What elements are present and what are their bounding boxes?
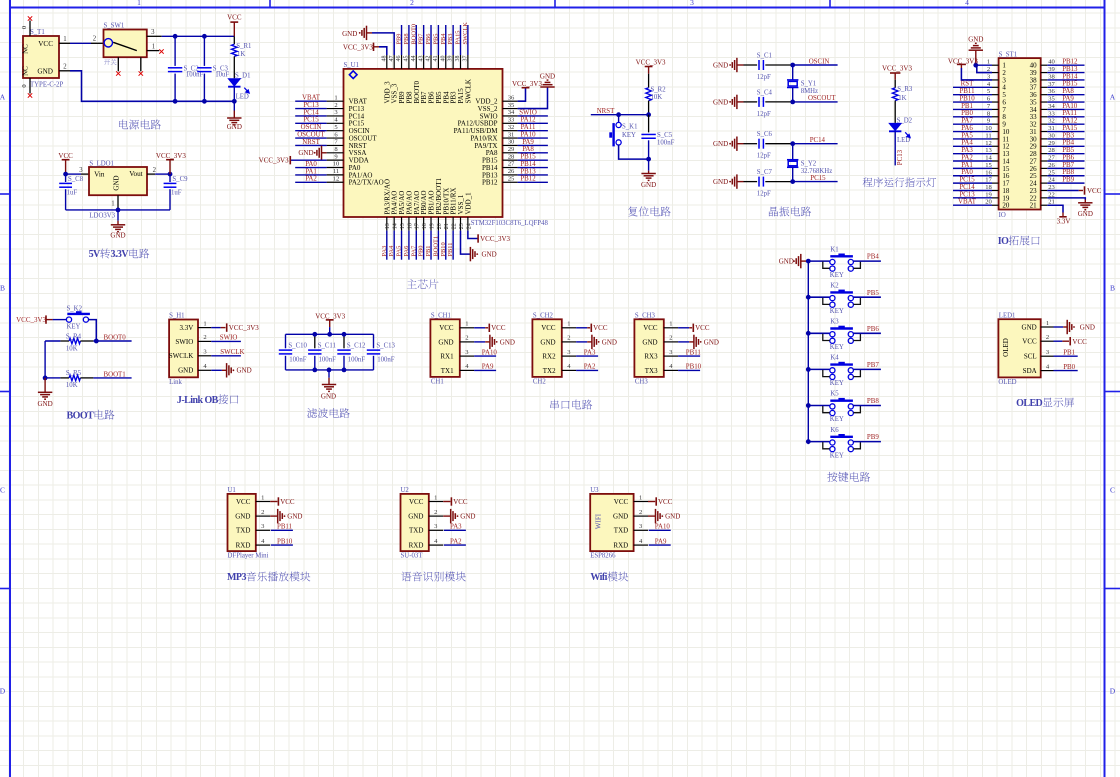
svg-text:GND: GND xyxy=(500,338,515,346)
svg-text:PB12: PB12 xyxy=(1062,59,1078,66)
svg-text:39: 39 xyxy=(448,56,454,62)
svg-text:OLED: OLED xyxy=(1002,338,1010,357)
svg-text:NRST: NRST xyxy=(597,108,615,115)
svg-text:J-Link OB: J-Link OB xyxy=(177,395,219,406)
svg-text:PB9: PB9 xyxy=(867,434,879,441)
svg-text:18: 18 xyxy=(422,223,428,229)
svg-text:PB8: PB8 xyxy=(403,33,410,44)
svg-text:1uF: 1uF xyxy=(171,190,182,197)
svg-text:PB11: PB11 xyxy=(447,243,454,257)
svg-text:PA10: PA10 xyxy=(482,349,498,356)
svg-text:BOOT1: BOOT1 xyxy=(104,371,127,378)
svg-text:K3: K3 xyxy=(830,319,839,326)
svg-text:PA10: PA10 xyxy=(1062,103,1078,110)
svg-text:PA9: PA9 xyxy=(482,364,494,371)
svg-text:GND: GND xyxy=(37,67,53,75)
svg-text:S_C9: S_C9 xyxy=(172,176,188,183)
svg-text:PA2: PA2 xyxy=(305,176,317,183)
svg-text:U3: U3 xyxy=(590,487,599,494)
svg-text:1: 1 xyxy=(639,494,642,501)
svg-text:LED1: LED1 xyxy=(999,313,1016,320)
svg-text:TXD: TXD xyxy=(236,527,250,535)
svg-text:2: 2 xyxy=(261,509,264,516)
svg-text:IO: IO xyxy=(999,212,1006,219)
svg-text:PB15: PB15 xyxy=(520,154,536,161)
svg-text:2: 2 xyxy=(639,509,642,516)
svg-text:PB8: PB8 xyxy=(1062,169,1074,176)
svg-text:2: 2 xyxy=(203,334,206,341)
svg-text:OSCOUT: OSCOUT xyxy=(297,131,325,138)
svg-text:PC14: PC14 xyxy=(303,109,319,116)
svg-text:RX1: RX1 xyxy=(440,353,454,361)
svg-text:KEY: KEY xyxy=(830,344,844,351)
svg-text:S_C8: S_C8 xyxy=(68,176,84,183)
svg-text:24: 24 xyxy=(466,223,472,229)
svg-text:PB1: PB1 xyxy=(961,103,973,110)
svg-text:VCC_3V3: VCC_3V3 xyxy=(259,157,289,165)
svg-text:C: C xyxy=(1110,486,1115,495)
svg-text:S_C10: S_C10 xyxy=(288,343,307,350)
svg-text:PC13: PC13 xyxy=(959,191,975,198)
svg-text:VCC_3V3: VCC_3V3 xyxy=(156,152,186,160)
svg-text:VCC: VCC xyxy=(1022,338,1037,346)
svg-text:PA15: PA15 xyxy=(455,31,462,45)
svg-text:PB1: PB1 xyxy=(1063,349,1075,356)
svg-text:48: 48 xyxy=(381,56,387,62)
svg-text:PB7: PB7 xyxy=(418,33,425,45)
svg-text:PA15: PA15 xyxy=(1062,125,1078,132)
svg-text:27: 27 xyxy=(508,161,515,168)
svg-text:GND: GND xyxy=(321,392,336,400)
svg-text:S_C7: S_C7 xyxy=(757,169,773,176)
svg-text:GND: GND xyxy=(298,149,313,157)
svg-text:31: 31 xyxy=(508,131,515,138)
svg-text:GND: GND xyxy=(235,513,250,521)
svg-text:GND: GND xyxy=(342,30,357,38)
svg-text:GND: GND xyxy=(1022,323,1037,331)
svg-text:VCC: VCC xyxy=(409,498,424,506)
svg-text:20: 20 xyxy=(437,223,443,229)
svg-text:TX1: TX1 xyxy=(441,367,454,375)
svg-text:1: 1 xyxy=(669,321,672,328)
svg-text:SWCLK: SWCLK xyxy=(220,349,244,356)
svg-text:Vout: Vout xyxy=(129,170,142,178)
svg-text:1: 1 xyxy=(111,201,114,208)
svg-text:KEY: KEY xyxy=(830,380,844,387)
svg-text:10K: 10K xyxy=(66,382,78,389)
svg-text:3.3V: 3.3V xyxy=(179,324,193,332)
svg-text:CH3: CH3 xyxy=(635,378,648,385)
svg-text:PB11: PB11 xyxy=(686,349,702,356)
svg-text:2: 2 xyxy=(63,64,67,71)
svg-text:PA12: PA12 xyxy=(520,117,536,124)
svg-text:VCC: VCC xyxy=(280,498,295,506)
svg-text:GND: GND xyxy=(540,338,555,346)
svg-text:S_U1: S_U1 xyxy=(344,62,360,69)
svg-text:36: 36 xyxy=(508,94,515,101)
svg-text:PB5: PB5 xyxy=(867,290,879,297)
svg-text:PB8: PB8 xyxy=(867,398,879,405)
svg-text:S_LDO1: S_LDO1 xyxy=(89,160,114,167)
svg-text:32.768KHz: 32.768KHz xyxy=(801,168,833,175)
svg-text:2: 2 xyxy=(1046,334,1049,341)
svg-text:SWCLK: SWCLK xyxy=(464,79,472,104)
svg-text:1uF: 1uF xyxy=(67,190,78,197)
svg-text:PB12: PB12 xyxy=(482,179,498,187)
svg-text:S_ST1: S_ST1 xyxy=(999,51,1018,58)
svg-text:S_K2: S_K2 xyxy=(67,305,83,312)
svg-text:26: 26 xyxy=(508,168,515,175)
svg-text:40: 40 xyxy=(440,56,446,62)
svg-text:RX2: RX2 xyxy=(542,353,556,361)
svg-text:D: D xyxy=(1110,687,1116,696)
svg-text:PC15: PC15 xyxy=(810,175,826,182)
svg-text:S_R4: S_R4 xyxy=(66,333,82,340)
svg-text:KEY: KEY xyxy=(830,272,844,279)
svg-text:TXD: TXD xyxy=(614,527,628,535)
svg-text:VBAT: VBAT xyxy=(958,199,977,206)
svg-text:K1: K1 xyxy=(830,246,838,253)
svg-text:VCC: VCC xyxy=(614,498,629,506)
svg-text:DFPlayer Mini: DFPlayer Mini xyxy=(228,553,269,560)
svg-text:PB13: PB13 xyxy=(1062,66,1078,73)
svg-text:RX3: RX3 xyxy=(644,353,658,361)
svg-text:RXD: RXD xyxy=(236,542,251,550)
svg-text:GND: GND xyxy=(779,258,794,266)
svg-text:38: 38 xyxy=(455,56,461,62)
svg-text:23: 23 xyxy=(459,223,465,229)
svg-text:PA1: PA1 xyxy=(961,162,973,169)
svg-text:A: A xyxy=(0,93,6,102)
svg-text:OSCIN: OSCIN xyxy=(809,58,830,65)
svg-text:OSCOUT: OSCOUT xyxy=(808,95,836,102)
svg-text:1: 1 xyxy=(63,36,66,43)
svg-text:PC15: PC15 xyxy=(303,117,319,124)
svg-text:S_R2: S_R2 xyxy=(651,86,667,93)
svg-text:NC: NC xyxy=(22,66,30,76)
svg-text:KEY: KEY xyxy=(622,132,636,139)
svg-text:0: 0 xyxy=(21,84,28,87)
svg-text:B: B xyxy=(1110,284,1115,293)
svg-text:RXD: RXD xyxy=(613,542,628,550)
svg-text:S_Y1: S_Y1 xyxy=(801,81,817,88)
svg-text:12pF: 12pF xyxy=(757,191,771,198)
svg-text:15: 15 xyxy=(400,223,406,229)
svg-text:D: D xyxy=(0,687,6,696)
svg-text:VCC_3V3: VCC_3V3 xyxy=(16,316,46,324)
svg-text:12pF: 12pF xyxy=(757,111,771,118)
svg-text:GND: GND xyxy=(665,513,680,521)
svg-text:5V: 5V xyxy=(89,249,101,260)
svg-text:21: 21 xyxy=(1030,202,1038,210)
svg-text:100nF: 100nF xyxy=(289,356,307,363)
svg-text:2: 2 xyxy=(93,36,97,43)
svg-text:12: 12 xyxy=(333,175,340,182)
svg-text:PA8: PA8 xyxy=(1062,88,1074,95)
svg-text:PA3: PA3 xyxy=(450,524,462,531)
svg-text:28: 28 xyxy=(508,153,515,160)
svg-text:46: 46 xyxy=(396,56,402,62)
svg-text:PB15: PB15 xyxy=(1062,81,1078,88)
svg-text:22: 22 xyxy=(452,223,458,229)
svg-text:C: C xyxy=(0,486,5,495)
svg-text:TX3: TX3 xyxy=(645,367,658,375)
svg-text:PB4: PB4 xyxy=(440,33,447,45)
svg-text:20: 20 xyxy=(1002,202,1010,210)
svg-text:PB7: PB7 xyxy=(1062,162,1074,169)
svg-text:1: 1 xyxy=(1046,320,1049,327)
svg-text:0: 0 xyxy=(21,26,28,29)
svg-text:PC15: PC15 xyxy=(959,177,975,184)
svg-text:LED: LED xyxy=(897,137,910,144)
svg-text:1: 1 xyxy=(334,94,337,101)
svg-text:13: 13 xyxy=(385,223,391,229)
svg-text:BOOT: BOOT xyxy=(67,410,95,421)
svg-text:2: 2 xyxy=(567,335,570,342)
svg-text:VCC: VCC xyxy=(593,324,608,332)
svg-text:VCC: VCC xyxy=(1072,338,1087,346)
svg-text:10: 10 xyxy=(333,161,340,168)
svg-text:TX2: TX2 xyxy=(543,367,556,375)
svg-text:PB0: PB0 xyxy=(418,245,425,256)
svg-text:GND: GND xyxy=(642,338,657,346)
svg-text:GND: GND xyxy=(287,513,302,521)
svg-text:10uF: 10uF xyxy=(215,72,229,79)
svg-text:PA5: PA5 xyxy=(396,246,403,257)
svg-text:PA6: PA6 xyxy=(403,246,410,257)
svg-text:VCC: VCC xyxy=(439,324,454,332)
svg-text:100nF: 100nF xyxy=(186,72,204,79)
svg-text:PA4: PA4 xyxy=(961,140,973,147)
svg-text:KEY: KEY xyxy=(67,323,81,330)
svg-text:OLED: OLED xyxy=(998,379,1016,386)
svg-text:SWIO: SWIO xyxy=(175,338,193,346)
svg-text:VCC: VCC xyxy=(236,498,251,506)
svg-text:PC13: PC13 xyxy=(303,102,319,109)
svg-text:PB5: PB5 xyxy=(432,33,439,44)
svg-text:GND: GND xyxy=(482,251,497,259)
svg-text:14: 14 xyxy=(393,223,399,229)
svg-text:3: 3 xyxy=(690,0,694,7)
svg-text:100nF: 100nF xyxy=(348,356,366,363)
svg-text:IO: IO xyxy=(998,236,1009,247)
svg-text:29: 29 xyxy=(508,146,515,153)
svg-text:KEY: KEY xyxy=(830,308,844,315)
svg-text:K2: K2 xyxy=(830,282,839,289)
svg-text:PB10: PB10 xyxy=(277,538,293,545)
svg-text:CH1: CH1 xyxy=(431,378,444,385)
svg-text:MP3: MP3 xyxy=(227,572,246,583)
svg-text:PB14: PB14 xyxy=(1062,73,1078,80)
svg-text:BOOT1: BOOT1 xyxy=(432,236,439,257)
svg-text:VCC_3V3: VCC_3V3 xyxy=(882,65,912,73)
svg-text:33: 33 xyxy=(508,117,515,124)
svg-text:GND: GND xyxy=(110,232,125,240)
svg-text:PA10: PA10 xyxy=(655,524,671,531)
svg-text:1K: 1K xyxy=(898,95,906,102)
svg-text:41: 41 xyxy=(433,56,439,62)
svg-text:RST: RST xyxy=(961,81,974,88)
svg-text:VCC: VCC xyxy=(453,498,468,506)
svg-text:GND: GND xyxy=(968,36,983,44)
svg-text:12pF: 12pF xyxy=(757,153,771,160)
svg-text:SWCLK: SWCLK xyxy=(462,22,469,45)
svg-text:VBAT: VBAT xyxy=(302,95,321,102)
svg-text:BOOT0: BOOT0 xyxy=(410,24,417,45)
svg-text:PC14: PC14 xyxy=(959,184,975,191)
svg-text:B: B xyxy=(0,284,5,293)
svg-text:100nF: 100nF xyxy=(319,356,337,363)
svg-text:PB0: PB0 xyxy=(1063,364,1075,371)
svg-text:GND: GND xyxy=(704,338,719,346)
svg-text:VCC_3V3: VCC_3V3 xyxy=(229,324,259,332)
svg-text:VCC_3V3: VCC_3V3 xyxy=(343,44,373,52)
svg-text:37: 37 xyxy=(462,56,468,62)
svg-text:OLED: OLED xyxy=(1016,398,1042,409)
svg-text:GND: GND xyxy=(178,367,193,375)
svg-text:SCL: SCL xyxy=(1024,353,1037,361)
svg-text:S_C5: S_C5 xyxy=(657,132,673,139)
svg-text:47: 47 xyxy=(389,56,395,62)
svg-text:45: 45 xyxy=(404,56,410,62)
svg-text:2: 2 xyxy=(153,167,157,174)
svg-text:S_T1: S_T1 xyxy=(30,29,45,36)
svg-text:GND: GND xyxy=(438,338,453,346)
svg-text:1: 1 xyxy=(203,320,206,327)
svg-text:VCC: VCC xyxy=(658,498,673,506)
svg-text:GND: GND xyxy=(113,175,121,190)
svg-text:PB9: PB9 xyxy=(396,33,403,44)
svg-text:LDO3V3: LDO3V3 xyxy=(89,212,115,219)
svg-text:PA9: PA9 xyxy=(1062,95,1074,102)
svg-text:PB1: PB1 xyxy=(425,245,432,256)
svg-text:PA8: PA8 xyxy=(522,146,534,153)
svg-text:NC: NC xyxy=(22,44,30,54)
svg-text:PA3: PA3 xyxy=(381,246,388,257)
svg-text:VCC: VCC xyxy=(643,324,658,332)
svg-text:VCC: VCC xyxy=(491,324,506,332)
svg-text:S_CH3: S_CH3 xyxy=(635,312,656,319)
svg-text:16: 16 xyxy=(407,223,413,229)
svg-text:PB12: PB12 xyxy=(520,176,536,183)
svg-text:PA12: PA12 xyxy=(1062,118,1078,125)
svg-text:TYPE-C-2P: TYPE-C-2P xyxy=(30,82,63,89)
svg-text:S_CH2: S_CH2 xyxy=(533,312,554,319)
svg-text:SDA: SDA xyxy=(1023,367,1037,375)
svg-text:S_R1: S_R1 xyxy=(236,43,251,50)
svg-text:PB6: PB6 xyxy=(867,326,879,333)
svg-text:TXD: TXD xyxy=(409,527,423,535)
svg-text:VCC_3V3: VCC_3V3 xyxy=(636,58,666,66)
svg-text:PB10: PB10 xyxy=(440,242,447,256)
svg-text:PB14: PB14 xyxy=(520,161,536,168)
svg-text:VCC_3V3: VCC_3V3 xyxy=(512,80,542,88)
svg-text:CH2: CH2 xyxy=(533,378,546,385)
svg-text:PA2: PA2 xyxy=(450,538,462,545)
svg-text:STM32F103C8T6_LQFP48: STM32F103C8T6_LQFP48 xyxy=(471,220,549,227)
svg-text:1: 1 xyxy=(465,321,468,328)
svg-text:GND: GND xyxy=(237,367,252,375)
svg-text:GND: GND xyxy=(713,140,728,148)
svg-text:LED: LED xyxy=(236,94,249,101)
svg-text:K4: K4 xyxy=(830,355,839,362)
svg-text:VCC: VCC xyxy=(58,152,73,160)
svg-text:PB10: PB10 xyxy=(959,95,975,102)
svg-text:S_C4: S_C4 xyxy=(757,89,773,96)
svg-text:PA4: PA4 xyxy=(388,245,395,257)
svg-text:PB0: PB0 xyxy=(961,110,973,117)
svg-text:PC13: PC13 xyxy=(897,149,904,165)
svg-text:S_K1: S_K1 xyxy=(622,123,638,130)
svg-text:GND: GND xyxy=(1080,324,1095,332)
svg-text:10K: 10K xyxy=(651,94,663,101)
svg-text:PA3: PA3 xyxy=(584,349,596,356)
svg-text:GND: GND xyxy=(613,513,628,521)
svg-text:100nF: 100nF xyxy=(657,139,675,146)
svg-text:PA2/TX/AO: PA2/TX/AO xyxy=(349,179,384,187)
svg-text:1: 1 xyxy=(434,494,437,501)
svg-text:VCC: VCC xyxy=(227,13,242,21)
svg-text:PB4: PB4 xyxy=(1062,140,1074,147)
svg-text:GND: GND xyxy=(641,181,656,189)
svg-text:PA6: PA6 xyxy=(961,125,973,132)
svg-text:VCC: VCC xyxy=(1087,187,1102,195)
svg-text:3.3V: 3.3V xyxy=(111,249,130,260)
svg-text:PA0: PA0 xyxy=(305,161,317,168)
svg-text:PB13: PB13 xyxy=(520,168,536,175)
svg-text:SWIO: SWIO xyxy=(519,109,537,116)
svg-text:VCC: VCC xyxy=(695,324,710,332)
svg-text:100nF: 100nF xyxy=(377,356,395,363)
svg-text:2: 2 xyxy=(465,335,468,342)
svg-text:GND: GND xyxy=(1078,210,1093,218)
svg-text:42: 42 xyxy=(426,56,432,62)
svg-text:PB5: PB5 xyxy=(1062,147,1074,154)
svg-text:RXD: RXD xyxy=(409,542,424,550)
svg-text:KEY: KEY xyxy=(830,452,844,459)
svg-text:K6: K6 xyxy=(830,427,839,434)
svg-text:SU-03T: SU-03T xyxy=(401,553,424,560)
svg-text:25: 25 xyxy=(508,175,515,182)
svg-text:VCC: VCC xyxy=(541,324,556,332)
svg-text:10K: 10K xyxy=(66,345,78,352)
svg-text:PA5: PA5 xyxy=(961,132,973,139)
svg-text:SWCLK: SWCLK xyxy=(169,352,194,360)
svg-text:1K: 1K xyxy=(237,51,245,58)
svg-text:S_CH1: S_CH1 xyxy=(431,312,451,319)
svg-text:PA7: PA7 xyxy=(410,245,417,257)
svg-text:21: 21 xyxy=(444,223,450,229)
svg-text:GND: GND xyxy=(602,338,617,346)
svg-text:PB3: PB3 xyxy=(1062,132,1074,139)
svg-text:GND: GND xyxy=(713,98,728,106)
svg-text:3: 3 xyxy=(151,29,155,36)
svg-text:U2: U2 xyxy=(401,487,410,494)
svg-text:4: 4 xyxy=(965,0,969,7)
svg-text:PA7: PA7 xyxy=(961,118,973,125)
svg-text:GND: GND xyxy=(713,178,728,186)
svg-text:GND: GND xyxy=(713,61,728,69)
svg-text:PA3: PA3 xyxy=(961,147,973,154)
svg-text:PB10: PB10 xyxy=(686,364,702,371)
svg-text:GND: GND xyxy=(38,400,53,408)
svg-text:32: 32 xyxy=(508,124,515,131)
svg-text:S_R3: S_R3 xyxy=(897,86,913,93)
svg-text:PA10: PA10 xyxy=(520,131,536,138)
svg-text:U1: U1 xyxy=(228,487,236,494)
svg-text:35: 35 xyxy=(508,102,515,109)
svg-text:K5: K5 xyxy=(830,391,839,398)
